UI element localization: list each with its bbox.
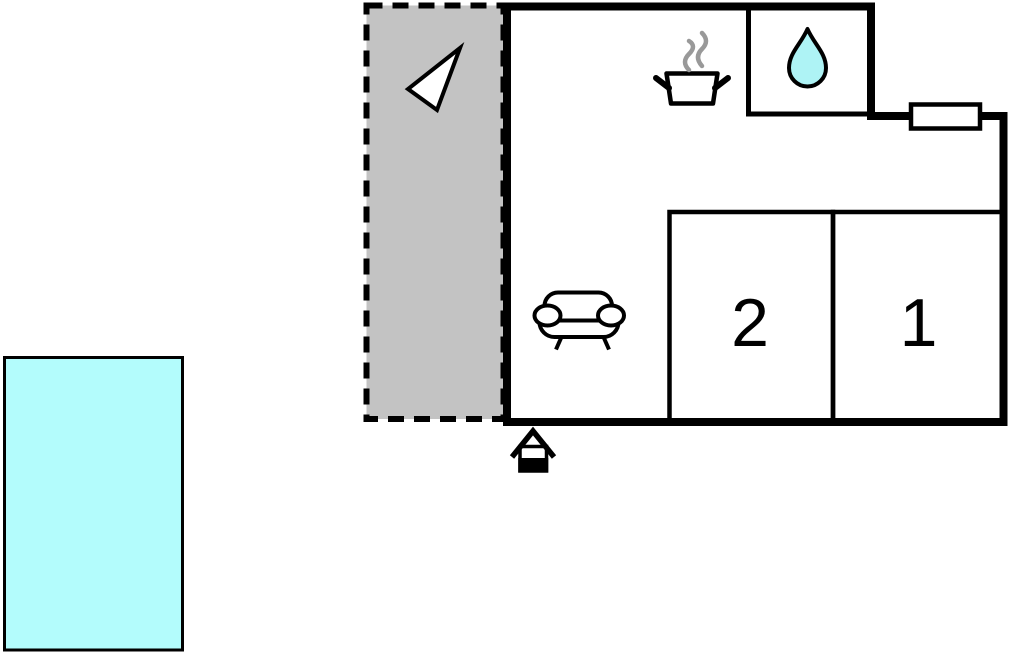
floor-plan-canvas: 2 1: [0, 0, 1011, 652]
bedroom-2-label: 2: [731, 285, 769, 361]
pool: [5, 358, 183, 651]
window-marker: [911, 105, 980, 129]
entrance-house-icon: [512, 431, 554, 473]
floor-plan-drawing: 2 1: [0, 0, 1011, 652]
bedroom-1-label: 1: [900, 285, 938, 361]
